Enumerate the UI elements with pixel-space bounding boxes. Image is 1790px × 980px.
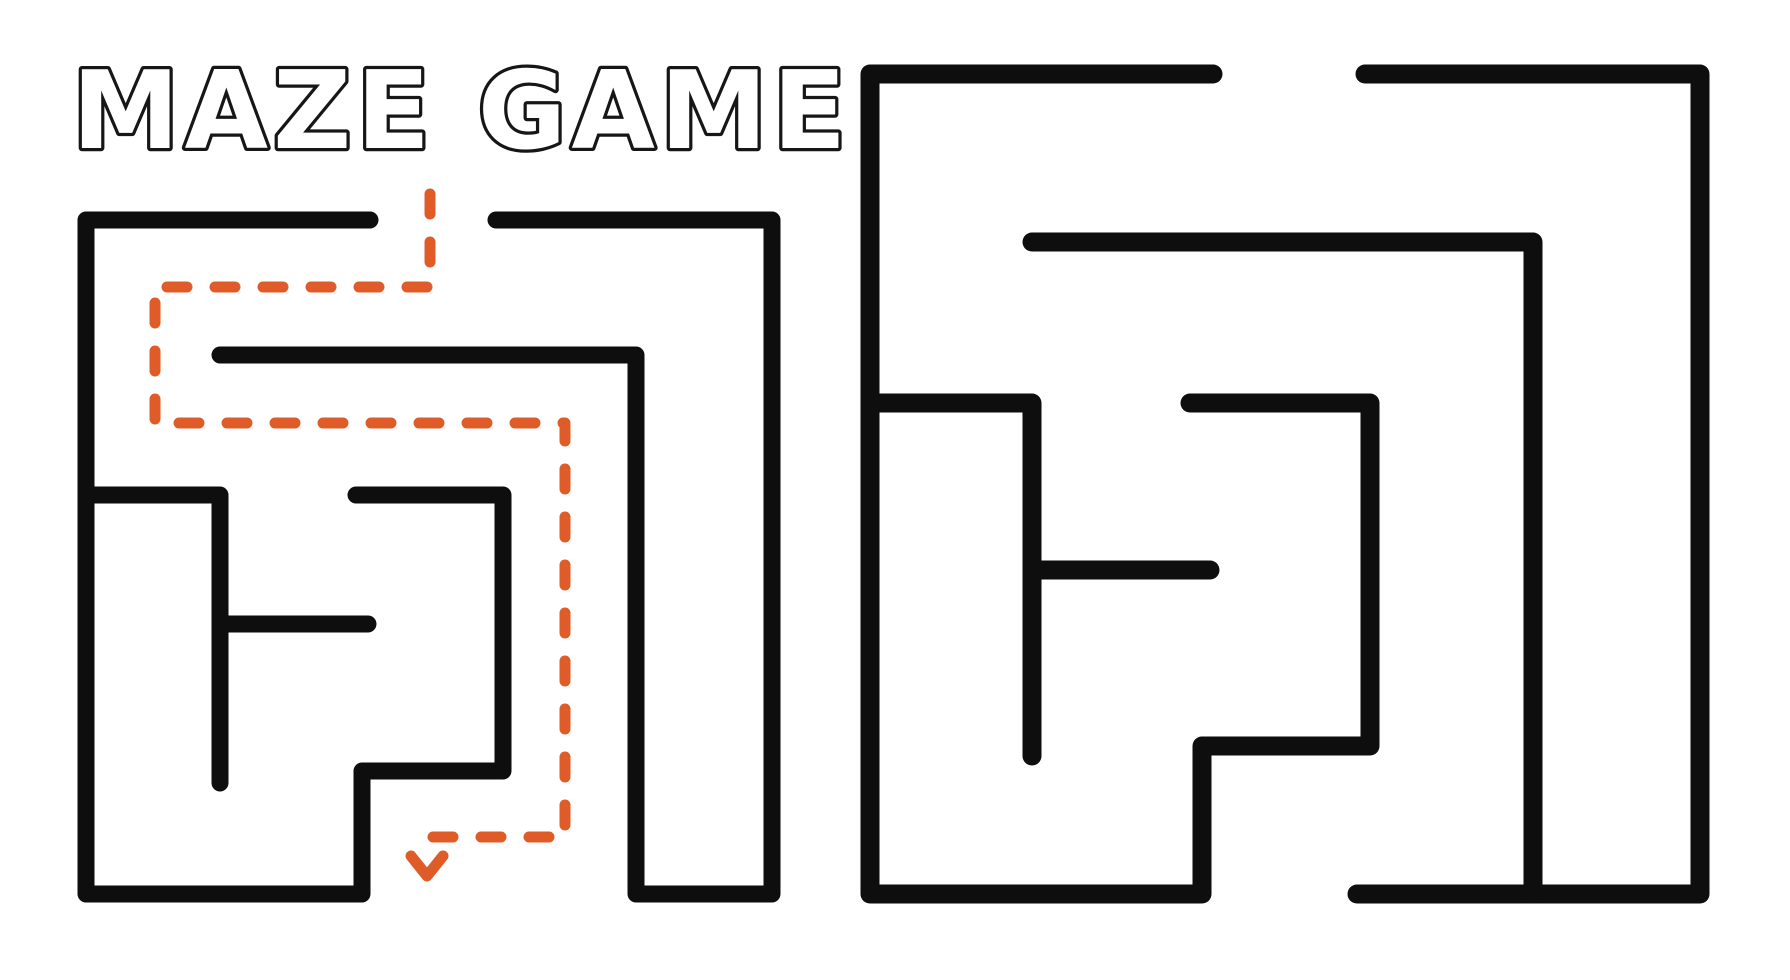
left-maze-walls [86, 220, 772, 894]
right-maze-walls [870, 74, 1700, 894]
left-maze [86, 194, 772, 894]
right-maze [870, 74, 1700, 894]
maze-worksheet: MAZE GAME [0, 0, 1790, 980]
solution-arrowhead-icon [411, 856, 443, 876]
page-title: MAZE GAME [72, 49, 851, 174]
maze-worksheet-svg: MAZE GAME [0, 0, 1790, 980]
